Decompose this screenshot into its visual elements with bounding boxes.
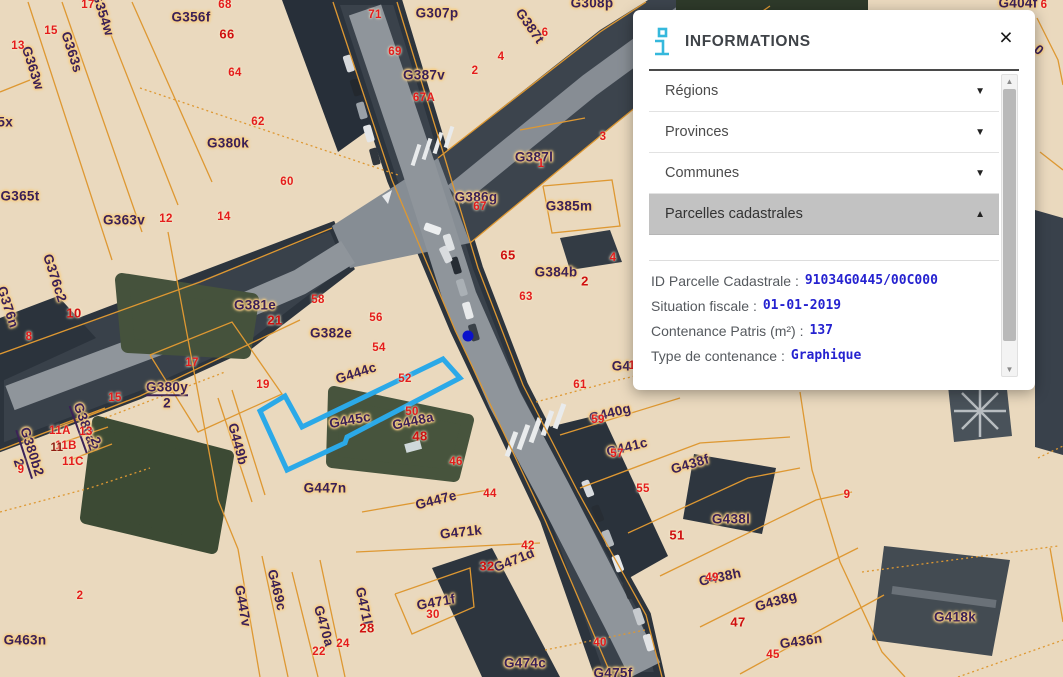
map-click-marker — [463, 331, 474, 342]
parcel-label: G447n — [304, 481, 347, 496]
house-number: 8 — [26, 331, 33, 343]
parcel-label: G438l — [712, 512, 750, 527]
house-number: 14 — [217, 211, 231, 223]
house-number: 19 — [256, 379, 270, 391]
map-viewer: G354wG356fG307pG308pG387tG387vG387lG386g… — [0, 0, 1063, 677]
accordion-item-parcelles-cadastrales[interactable]: Parcelles cadastrales ▲ — [649, 194, 999, 235]
house-number: 4 — [610, 252, 617, 264]
parcel-label: G365t — [0, 189, 39, 204]
house-number: 63 — [519, 291, 533, 303]
house-number: 52 — [398, 373, 412, 385]
parcel-details: ID Parcelle Cadastrale : 91034G0445/00C0… — [651, 268, 995, 368]
house-number: 22 — [312, 646, 326, 658]
house-number: 2 — [472, 65, 479, 77]
chevron-down-icon: ▼ — [975, 168, 985, 179]
parcel-label: G307p — [416, 6, 459, 21]
accordion-item-provinces[interactable]: Provinces ▼ — [649, 112, 999, 153]
panel-title: INFORMATIONS — [685, 33, 811, 51]
parcel-label: G380k — [207, 136, 249, 151]
situation-fiscale-value: 01-01-2019 — [763, 298, 841, 313]
panel-header: INFORMATIONS × — [633, 10, 1035, 65]
house-number: 59 — [591, 414, 605, 426]
house-number: 44 — [483, 488, 497, 500]
parcel-label: G404f — [998, 0, 1037, 11]
house-number: 45 — [766, 649, 780, 661]
house-number: 47 — [730, 615, 745, 630]
right-edge-street — [1035, 210, 1063, 455]
house-number: 2 — [77, 590, 84, 602]
parcel-id-value: 91034G0445/00C000 — [805, 273, 938, 288]
house-number: 56 — [369, 312, 383, 324]
house-number: 10 — [66, 306, 81, 321]
house-number: 9 — [18, 464, 25, 476]
house-number: 54 — [372, 342, 386, 354]
house-number: 65 — [500, 248, 515, 263]
house-number: 69 — [388, 46, 402, 58]
house-number: 57 — [610, 448, 624, 460]
parcel-label: G463n — [4, 633, 47, 648]
house-number: 11 — [51, 442, 64, 454]
parcel-label: G4 — [612, 359, 631, 374]
house-number: 9 — [844, 489, 851, 501]
details-divider — [649, 260, 999, 261]
type-contenance-value: Graphique — [791, 348, 861, 363]
info-icon — [651, 27, 673, 57]
house-number: 67A — [413, 92, 435, 104]
house-number: 51 — [669, 528, 684, 543]
parcel-label: 2 — [163, 396, 171, 411]
house-number: 12 — [159, 213, 173, 225]
parcel-label: G384b — [535, 265, 578, 280]
parcel-label: G363v — [103, 213, 145, 228]
detail-situation-fiscale: Situation fiscale : 01-01-2019 — [651, 293, 995, 318]
house-number: 62 — [251, 116, 265, 128]
parcel-label: G475f — [593, 666, 632, 677]
house-number: 64 — [228, 67, 242, 79]
house-number: 48 — [412, 429, 427, 444]
parcel-label: G385m — [546, 199, 593, 214]
house-number: 17 — [185, 357, 199, 369]
house-number: 2 — [581, 274, 589, 289]
accordion: Régions ▼ Provinces ▼ Communes ▼ Parcell… — [649, 71, 999, 235]
house-number: 32 — [479, 559, 494, 574]
accordion-item-regions[interactable]: Régions ▼ — [649, 71, 999, 112]
house-number: 13 — [11, 40, 25, 52]
house-number: 68 — [218, 0, 232, 11]
house-number: 6 — [542, 27, 549, 39]
house-number: 55 — [636, 483, 650, 495]
house-number: 15 — [44, 25, 58, 37]
panel-scrollbar[interactable]: ▲ ▼ — [1001, 74, 1018, 377]
house-number: 21 — [267, 313, 282, 328]
house-number: 6 — [1041, 0, 1048, 11]
chevron-down-icon: ▼ — [975, 127, 985, 138]
parcel-label: G382e — [310, 326, 352, 341]
house-number: 3 — [600, 131, 607, 143]
informations-panel: INFORMATIONS × Régions ▼ Provinces ▼ Com… — [633, 10, 1035, 390]
house-number: 60 — [280, 176, 294, 188]
detail-parcel-id: ID Parcelle Cadastrale : 91034G0445/00C0… — [651, 268, 995, 293]
house-number: 1 — [538, 158, 545, 170]
close-icon[interactable]: × — [993, 24, 1019, 50]
detail-contenance: Contenance Patris (m²) : 137 — [651, 318, 995, 343]
house-number: 15 — [108, 392, 122, 404]
parcel-label: G418k — [934, 610, 976, 625]
house-number: 11C — [62, 456, 84, 468]
house-number: 40 — [593, 637, 607, 649]
parcel-label: G387v — [403, 68, 445, 83]
house-number: 24 — [336, 638, 350, 650]
parcel-label: G356f — [171, 10, 210, 25]
parcel-label: G365x — [0, 115, 13, 130]
house-number: 11A — [49, 425, 71, 437]
parcel-label: G381e — [234, 298, 276, 313]
scrollbar-thumb[interactable] — [1003, 89, 1016, 341]
house-number: 46 — [449, 456, 463, 468]
house-number: 13 — [79, 426, 93, 438]
parcel-label: G474c — [504, 656, 546, 671]
house-number: 28 — [359, 621, 374, 636]
house-number: 4 — [498, 51, 505, 63]
parcel-label: G387l — [515, 150, 553, 165]
chevron-up-icon: ▲ — [975, 209, 985, 220]
contenance-value: 137 — [810, 323, 833, 338]
house-number: 61 — [573, 379, 587, 391]
parcel-label: G308p — [571, 0, 614, 11]
house-number: 58 — [311, 294, 325, 306]
house-number: 42 — [521, 540, 535, 552]
house-number: 66 — [219, 27, 234, 42]
accordion-item-communes[interactable]: Communes ▼ — [649, 153, 999, 194]
house-number: 30 — [426, 609, 440, 621]
house-number: 17 — [81, 0, 95, 11]
chevron-down-icon: ▼ — [975, 86, 985, 97]
house-number: 71 — [368, 9, 382, 21]
parcel-label: G380y — [146, 380, 188, 396]
scroll-down-icon[interactable]: ▼ — [1002, 363, 1017, 376]
scroll-up-icon[interactable]: ▲ — [1002, 75, 1017, 88]
house-number: 49 — [705, 572, 719, 584]
house-number: 50 — [405, 406, 419, 418]
detail-type-contenance: Type de contenance : Graphique — [651, 343, 995, 368]
house-number: 67 — [473, 201, 487, 213]
